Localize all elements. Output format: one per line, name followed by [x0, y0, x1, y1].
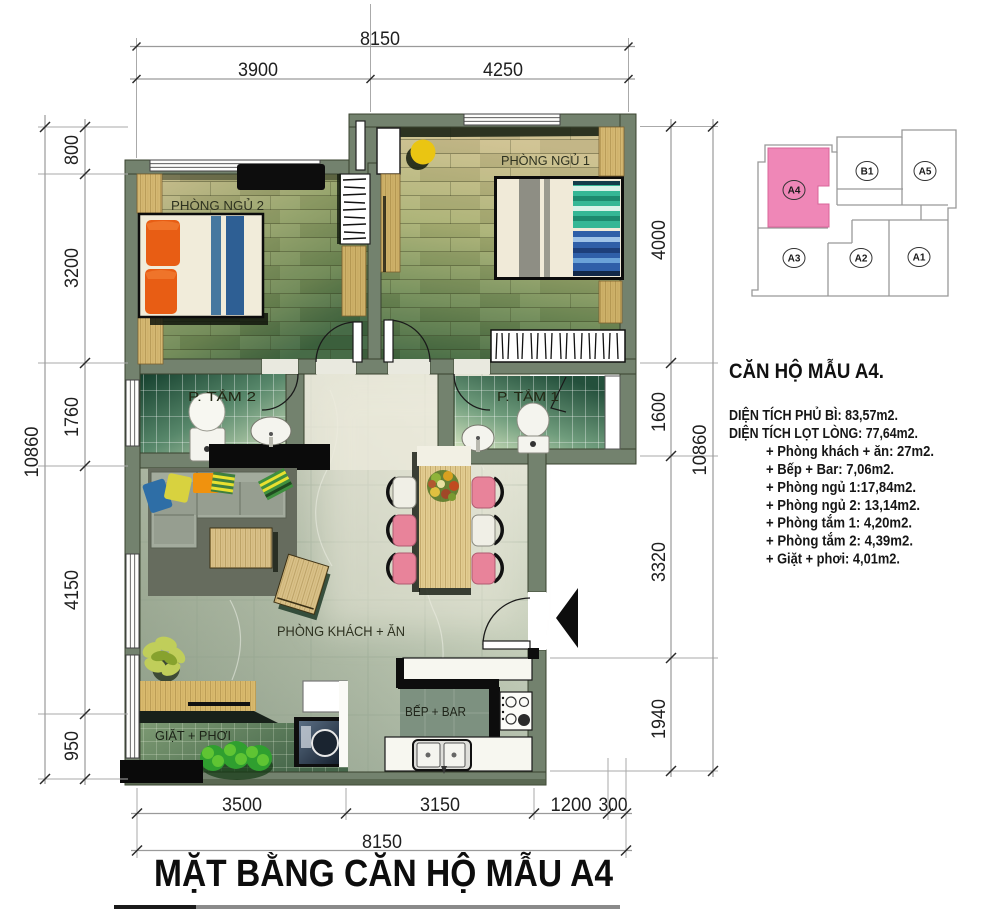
svg-text:BẾP + BAR: BẾP + BAR: [405, 704, 466, 719]
svg-text:+ Phòng tắm 1: 4,20m2.: + Phòng tắm 1: 4,20m2.: [766, 514, 912, 532]
svg-text:4000: 4000: [648, 220, 670, 260]
svg-text:1200: 1200: [551, 794, 592, 816]
svg-text:4150: 4150: [61, 570, 83, 610]
svg-text:+ Giặt + phơi: 4,01m2.: + Giặt + phơi: 4,01m2.: [766, 552, 900, 568]
svg-text:3150: 3150: [420, 794, 460, 816]
svg-text:950: 950: [61, 731, 83, 761]
svg-text:MẶT BẰNG CĂN HỘ MẪU A4: MẶT BẰNG CĂN HỘ MẪU A4: [154, 850, 613, 895]
svg-text:P. TẮM 1: P. TẮM 1: [497, 389, 559, 404]
svg-text:GIẶT + PHƠI: GIẶT + PHƠI: [155, 728, 231, 743]
svg-text:A3: A3: [788, 254, 801, 265]
svg-text:PHÒNG KHÁCH + ĂN: PHÒNG KHÁCH + ĂN: [277, 623, 405, 639]
svg-text:+ Bếp + Bar: 7,06m2.: + Bếp + Bar: 7,06m2.: [766, 462, 894, 478]
svg-text:A1: A1: [913, 253, 926, 264]
svg-text:300: 300: [599, 794, 628, 816]
svg-text:+ Phòng tắm 2: 4,39m2.: + Phòng tắm 2: 4,39m2.: [766, 532, 913, 550]
svg-text:PHÒNG NGỦ 2: PHÒNG NGỦ 2: [171, 198, 264, 213]
svg-text:A4: A4: [788, 186, 801, 197]
svg-text:3900: 3900: [238, 59, 278, 81]
svg-text:A5: A5: [919, 167, 932, 178]
svg-text:3320: 3320: [648, 542, 670, 582]
svg-text:10860: 10860: [689, 424, 711, 475]
svg-text:1600: 1600: [648, 392, 670, 432]
svg-text:3500: 3500: [222, 794, 262, 816]
svg-text:10860: 10860: [21, 426, 43, 477]
svg-text:A2: A2: [855, 254, 868, 265]
svg-text:+ Phòng ngủ 2: 13,14m2.: + Phòng ngủ 2: 13,14m2.: [766, 498, 920, 514]
svg-text:8150: 8150: [360, 28, 400, 50]
svg-text:DIỆN TÍCH LỌT LÒNG: 77,64m2.: DIỆN TÍCH LỌT LÒNG: 77,64m2.: [729, 424, 918, 442]
svg-text:DIỆN TÍCH PHỦ BÌ: 83,57m2.: DIỆN TÍCH PHỦ BÌ: 83,57m2.: [729, 406, 898, 424]
svg-text:B1: B1: [861, 167, 874, 178]
svg-text:1760: 1760: [61, 397, 83, 437]
svg-text:4250: 4250: [483, 59, 523, 81]
svg-text:3200: 3200: [61, 248, 83, 288]
svg-text:PHÒNG NGỦ 1: PHÒNG NGỦ 1: [501, 153, 590, 168]
svg-text:CĂN HỘ MẪU A4.: CĂN HỘ MẪU A4.: [729, 359, 884, 383]
svg-text:P. TẮM 2: P. TẮM 2: [188, 389, 256, 404]
svg-text:8150: 8150: [362, 831, 402, 853]
svg-text:800: 800: [61, 135, 83, 165]
svg-text:+ Phòng khách + ăn: 27m2.: + Phòng khách + ăn: 27m2.: [766, 444, 934, 460]
svg-text:1940: 1940: [648, 699, 670, 739]
svg-text:+ Phòng ngủ 1:17,84m2.: + Phòng ngủ 1:17,84m2.: [766, 480, 916, 496]
